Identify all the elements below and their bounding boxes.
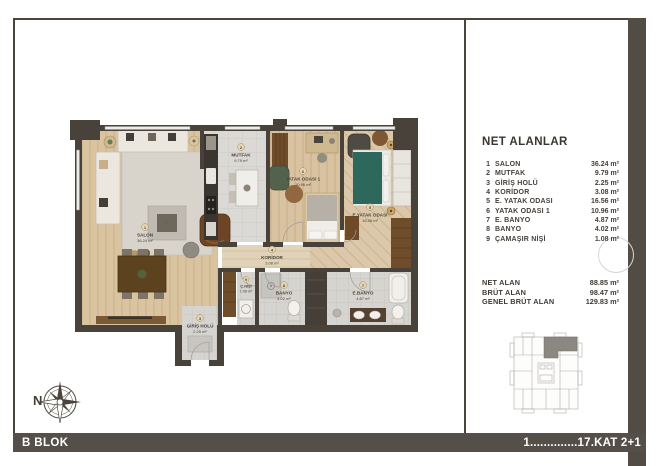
svg-text:KORİDOR: KORİDOR xyxy=(261,254,283,260)
compass-rose-icon xyxy=(38,380,82,424)
legend-row: 3GİRİŞ HOLÜ2.25 m² xyxy=(482,180,619,189)
side-table xyxy=(104,136,116,148)
legend-row: 6YATAK ODASI 110.96 m² xyxy=(482,208,619,217)
svg-text:9.79 m²: 9.79 m² xyxy=(234,158,248,163)
legend-room-list: 1SALON36.24 m² 2MUTFAK9.79 m² 3GİRİŞ HOL… xyxy=(482,161,619,245)
total-row-genel-brut-alan: GENEL BRÜT ALAN129.83 m² xyxy=(482,297,619,307)
svg-text:4.87 m²: 4.87 m² xyxy=(356,296,370,301)
svg-text:4.02 m²: 4.02 m² xyxy=(277,296,291,301)
right-accent-bar xyxy=(628,18,646,466)
block-label: B BLOK xyxy=(13,437,68,449)
total-row-brut-alan: BRÜT ALAN98.47 m² xyxy=(482,288,619,298)
master-wardrobe xyxy=(391,218,411,268)
svg-text:2.25 m²: 2.25 m² xyxy=(193,329,207,334)
svg-text:36.24 m²: 36.24 m² xyxy=(137,238,153,243)
svg-text:MUTFAK: MUTFAK xyxy=(231,153,251,158)
svg-text:Ç.NİŞİ: Ç.NİŞİ xyxy=(240,285,251,289)
pouf xyxy=(183,242,199,258)
svg-text:9: 9 xyxy=(245,278,247,282)
shaft xyxy=(305,268,327,325)
frame-left-line xyxy=(13,18,15,433)
legend-row: 9ÇAMAŞIR NİŞİ1.08 m² xyxy=(482,236,619,245)
frame-top-line xyxy=(13,18,628,20)
legend-row: 5E. YATAK ODASI16.56 m² xyxy=(482,198,619,207)
legend-row: 4KORİDOR3.08 m² xyxy=(482,189,619,198)
legend-totals: NET ALAN88.85 m² BRÜT ALAN98.47 m² GENEL… xyxy=(482,278,619,307)
total-row-net-alan: NET ALAN88.85 m² xyxy=(482,278,619,288)
apartment-floor-plan: 1 SALON 36.24 m² 2 MUTFAK 9.79 m² 3 GİRİ… xyxy=(60,110,450,375)
bedroom1-rug xyxy=(285,185,303,203)
tv-console xyxy=(96,316,166,324)
legend-title: NET ALANLAR xyxy=(482,136,568,148)
dining-table xyxy=(118,249,166,299)
svg-text:E.YATAK ODASI: E.YATAK ODASI xyxy=(353,213,388,218)
svg-text:3.08 m²: 3.08 m² xyxy=(265,261,279,266)
master-bed xyxy=(353,150,391,206)
legend-row: 8BANYO4.02 m² xyxy=(482,226,619,235)
svg-text:GİRİŞ HOLÜ: GİRİŞ HOLÜ xyxy=(187,323,214,329)
bath-stool xyxy=(333,309,341,317)
washing-machine xyxy=(239,300,253,318)
master-rug xyxy=(372,130,388,146)
hall-closet xyxy=(223,272,236,317)
master-bench xyxy=(345,216,359,240)
key-plan xyxy=(508,331,584,415)
bathtub xyxy=(389,273,408,303)
master-toilet xyxy=(392,305,404,324)
legend-row: 7E. BANYO4.87 m² xyxy=(482,217,619,226)
floor-lamp xyxy=(189,136,199,146)
floor-plan-sheet: 1 SALON 36.24 m² 2 MUTFAK 9.79 m² 3 GİRİ… xyxy=(0,0,660,466)
toilet xyxy=(288,301,300,322)
legend-row: 2MUTFAK9.79 m² xyxy=(482,170,619,179)
svg-text:YATAK ODASI 1: YATAK ODASI 1 xyxy=(286,177,321,182)
vanity-double-sink xyxy=(350,308,386,322)
floor-type-label: 1..............17.KAT 2+1 xyxy=(523,437,646,449)
kitchen-counter xyxy=(204,134,218,240)
svg-text:SALON: SALON xyxy=(137,233,154,238)
svg-text:10.96 m²: 10.96 m² xyxy=(295,182,311,187)
svg-text:1.08 m²: 1.08 m² xyxy=(240,290,253,294)
master-closet xyxy=(393,150,411,206)
svg-text:BANYO: BANYO xyxy=(276,291,293,296)
panel-divider-line xyxy=(464,18,466,433)
legend-row: 1SALON36.24 m² xyxy=(482,161,619,170)
bedroom1-bed xyxy=(305,193,339,243)
title-bar: B BLOK 1..............17.KAT 2+1 xyxy=(13,433,646,452)
svg-text:16.56 m²: 16.56 m² xyxy=(362,218,378,223)
coffee-table xyxy=(148,206,186,240)
svg-text:E.BANYO: E.BANYO xyxy=(353,291,374,296)
